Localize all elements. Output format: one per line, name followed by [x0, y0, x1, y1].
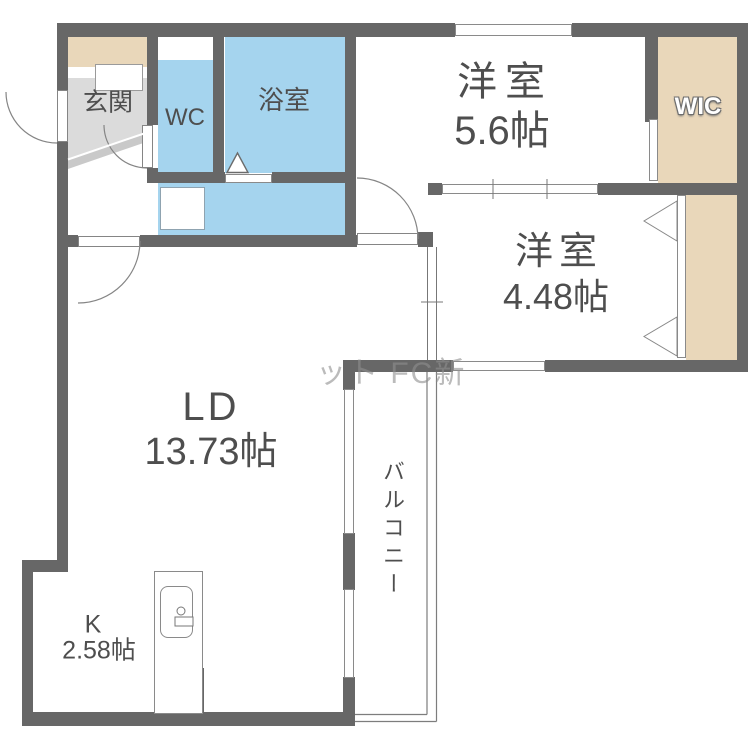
kitchen-faucet-base [175, 617, 193, 626]
washroom-door-swing-arc [104, 125, 147, 168]
closet-folding-door-lower [644, 317, 677, 356]
closet-folding-door-upper [644, 201, 677, 241]
kitchen-size: 2.58帖 [62, 639, 136, 664]
ld-door-swing-arc [78, 241, 140, 303]
bathroom-door-triangle [227, 153, 248, 173]
bedroom-upper-size: 5.6帖 [454, 111, 550, 151]
bedroom-lower-label: 洋室 [515, 233, 603, 271]
wic-label: WIC [675, 95, 722, 119]
ld-size: 13.73帖 [144, 433, 277, 471]
bedroom-upper-door-swing-arc [357, 178, 418, 239]
wc-label: WC [165, 106, 205, 130]
kitchen-faucet-knob [177, 607, 185, 615]
watermark: ット FC新 [316, 348, 466, 392]
ld-label: LD [182, 387, 239, 427]
bedroom-lower-sliding-partition [421, 247, 443, 360]
kitchen-label: K [85, 613, 102, 638]
genkan-step-line [68, 133, 147, 160]
floor-plan: 玄関 WC 浴室 洋室 5.6帖 WIC 洋室 4.48帖 LD 13.73帖 … [0, 0, 750, 750]
genkan-label: 玄関 [83, 91, 133, 116]
balcony-label: バルコニー [381, 460, 403, 600]
bathroom-label: 浴室 [258, 87, 310, 113]
entrance-door-swing-arc [6, 92, 57, 143]
bedroom-lower-size: 4.48帖 [503, 279, 609, 315]
bedroom-upper-label: 洋室 [457, 62, 553, 102]
